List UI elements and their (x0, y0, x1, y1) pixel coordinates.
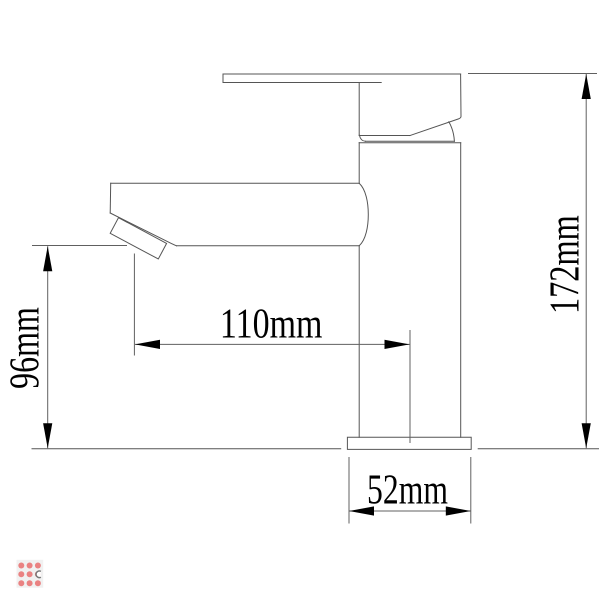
svg-text:110mm: 110mm (220, 301, 323, 347)
svg-text:52mm: 52mm (367, 467, 448, 513)
svg-text:172mm: 172mm (541, 215, 588, 314)
svg-text:96mm: 96mm (1, 307, 48, 389)
